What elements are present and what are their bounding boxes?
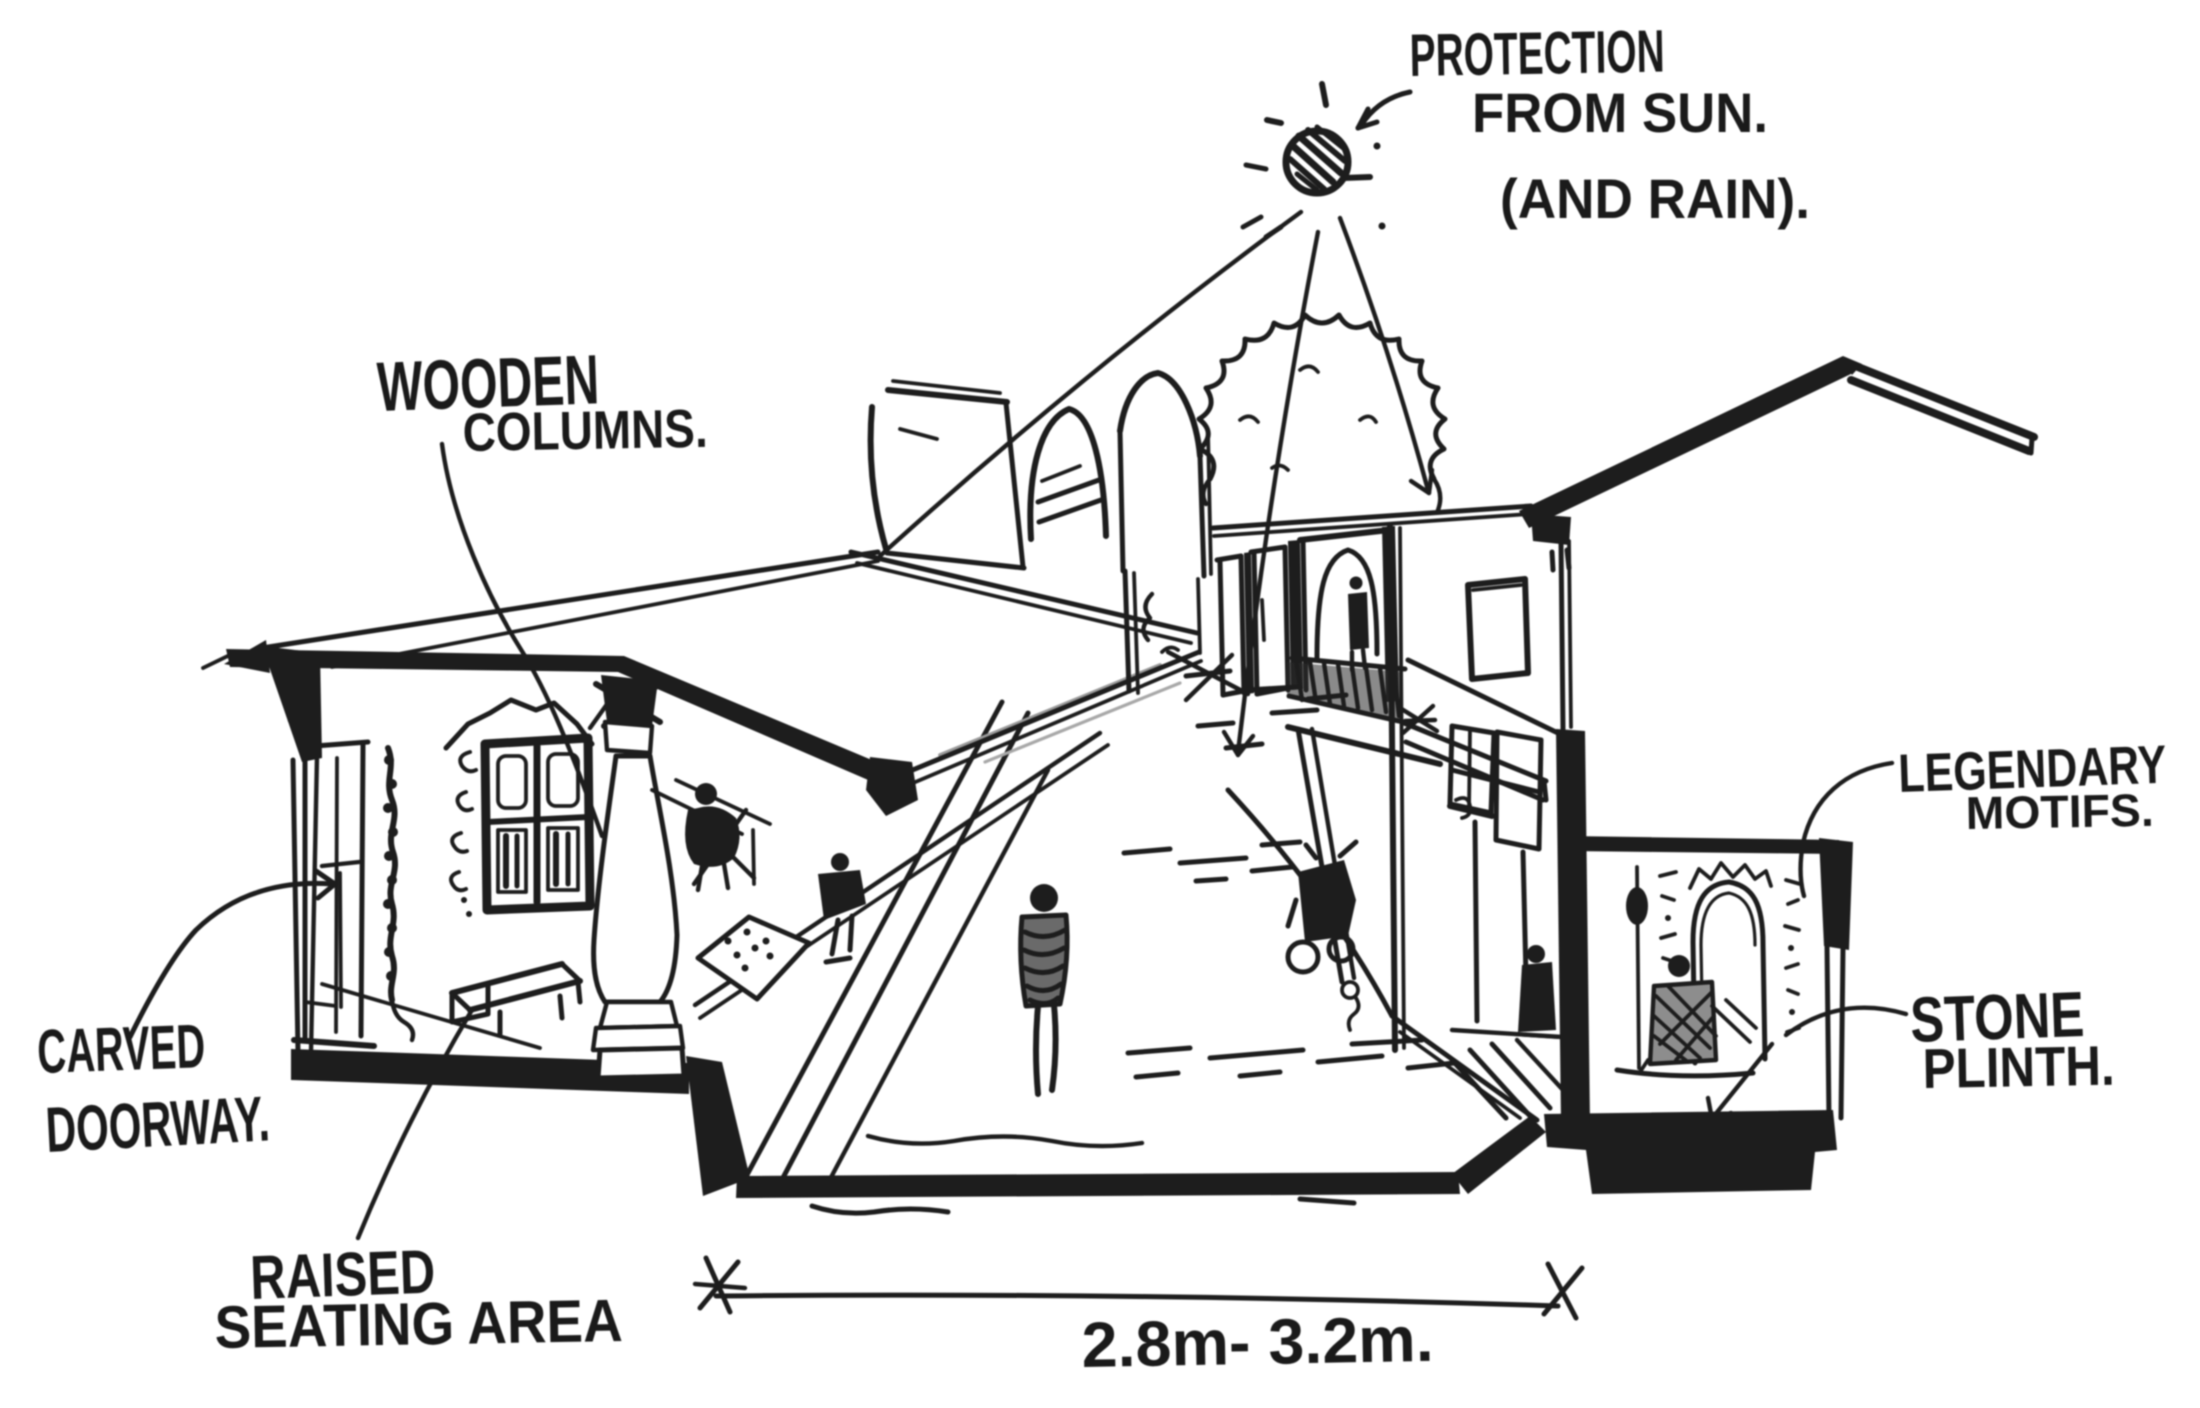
svg-text:DOORWAY.: DOORWAY. xyxy=(44,1082,271,1166)
svg-text:PROTECTION: PROTECTION xyxy=(1409,18,1665,89)
svg-text:COLUMNS.: COLUMNS. xyxy=(462,399,708,463)
svg-text:(AND RAIN).: (AND RAIN). xyxy=(1500,167,1810,230)
svg-text:CARVED: CARVED xyxy=(36,1012,206,1087)
svg-text:FROM SUN.: FROM SUN. xyxy=(1472,81,1768,144)
svg-text:SEATING AREA: SEATING AREA xyxy=(214,1287,623,1361)
svg-text:2.8m- 3.2m.: 2.8m- 3.2m. xyxy=(1081,1303,1434,1381)
svg-text:MOTIFS.: MOTIFS. xyxy=(1965,784,2154,839)
svg-text:PLINTH.: PLINTH. xyxy=(1922,1034,2115,1100)
